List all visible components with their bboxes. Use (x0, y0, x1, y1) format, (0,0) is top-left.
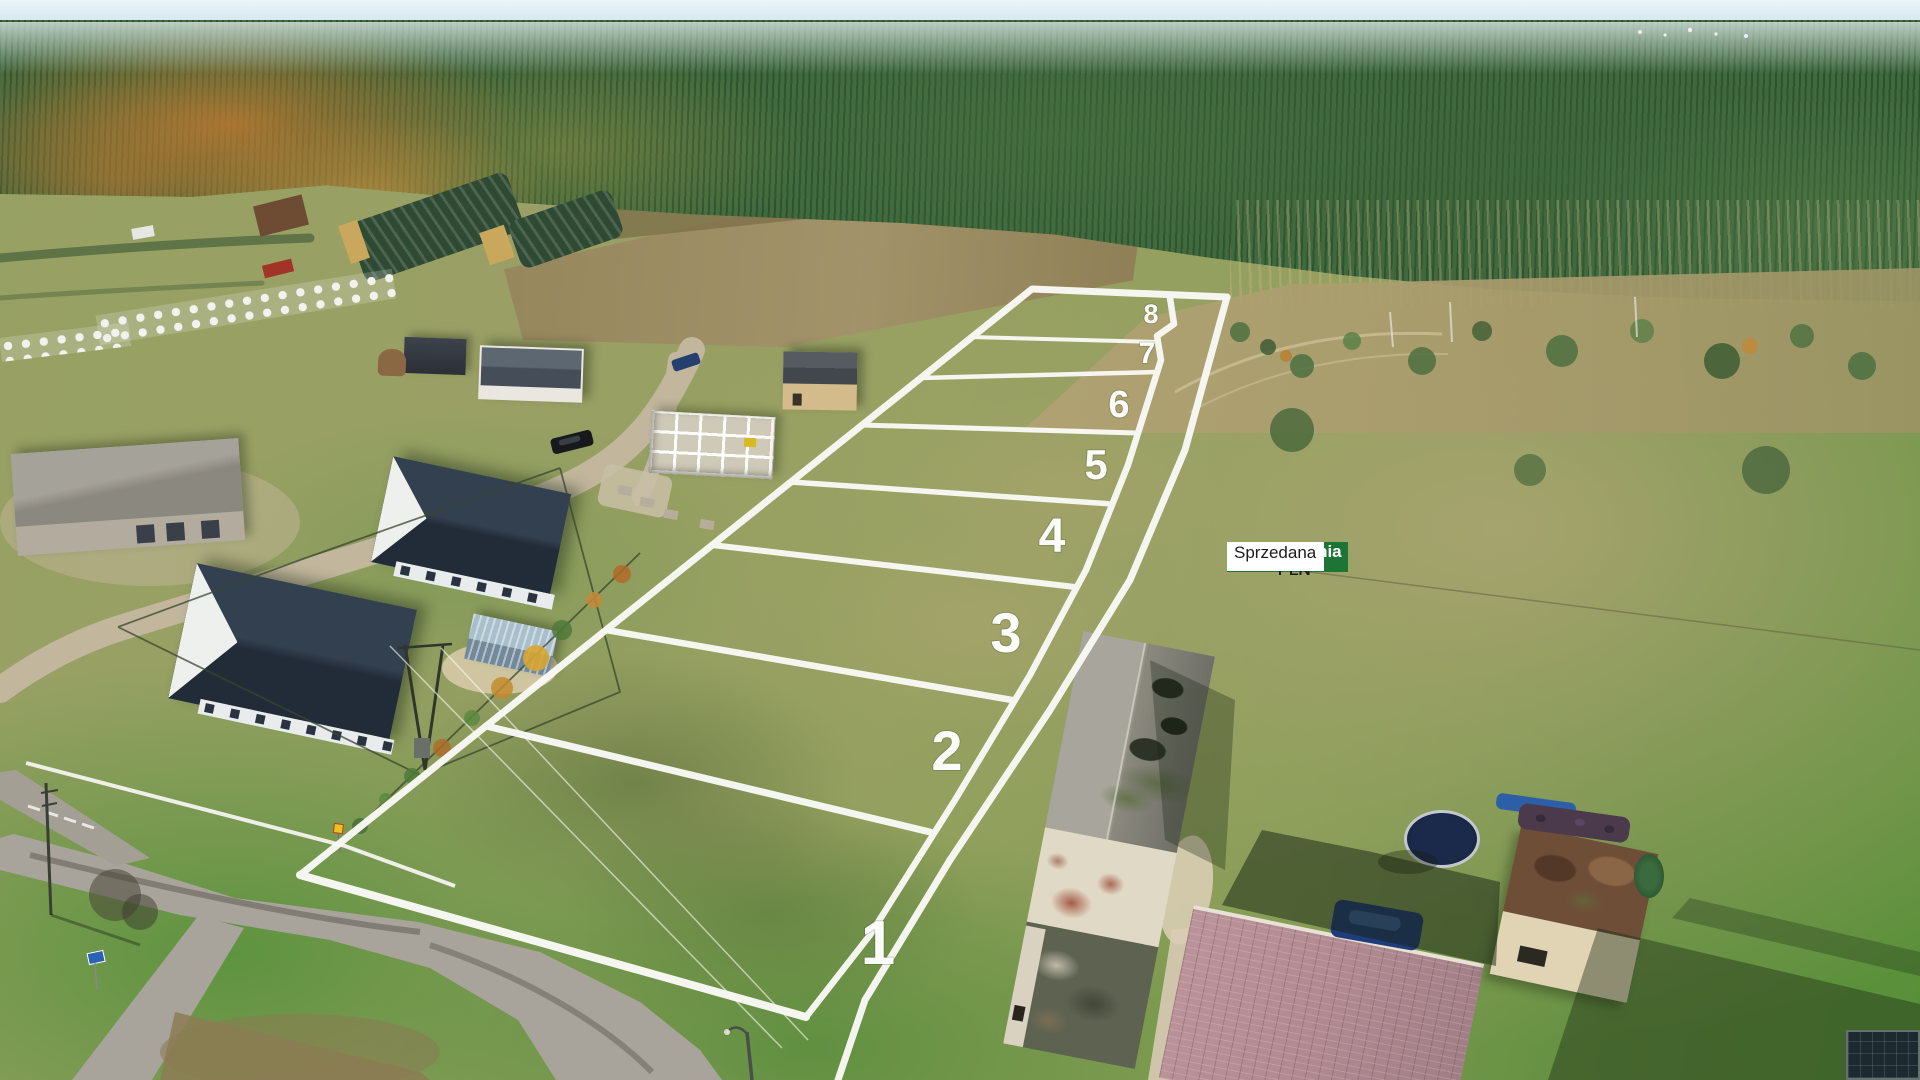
farmhouse-window (201, 520, 220, 539)
car-windshield (558, 435, 581, 446)
tan-house-door (793, 394, 802, 406)
mini-excavator (744, 438, 756, 448)
house-roof (481, 347, 582, 388)
horizon-haze (0, 22, 1920, 74)
dark-garage (403, 337, 466, 375)
old-farmhouse (11, 438, 246, 556)
small-tan-house (782, 351, 857, 410)
conifer-tree (1634, 854, 1664, 898)
farmhouse-window (166, 522, 185, 541)
car-roof (1348, 909, 1402, 932)
house-gray-roof (478, 345, 584, 403)
cell-status: Sprzedana (1227, 542, 1324, 571)
farmhouse-window (136, 524, 155, 543)
trampoline (1404, 810, 1480, 868)
farmhouse-roof (11, 438, 244, 527)
aerial-photo-scene: 1 2 3 4 5 6 7 8 Nr. Powierzchnia Cena St… (0, 0, 1920, 1080)
tan-house-roof (783, 351, 858, 384)
house-under-construction (648, 411, 775, 479)
wooden-hut (378, 349, 407, 377)
solar-panel (1846, 1030, 1920, 1080)
